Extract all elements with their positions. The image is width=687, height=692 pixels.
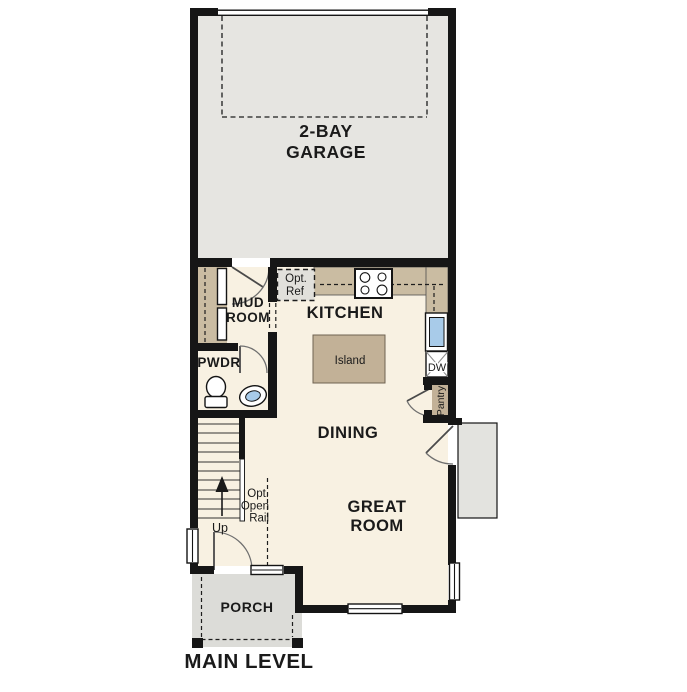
wall-garage-house: [190, 258, 232, 267]
porch-post: [292, 638, 303, 648]
toilet-tank: [205, 397, 227, 408]
wall-powder-top: [190, 343, 238, 351]
island-label: Island: [335, 355, 366, 367]
dishwasher-label: DW: [428, 362, 447, 374]
opt-rail-label-line3: Rail: [249, 513, 269, 525]
wall-powder-bottom: [190, 410, 277, 418]
wall-garage-post-right: [428, 8, 456, 16]
toilet-icon: [207, 377, 226, 398]
dining-label: DINING: [318, 424, 379, 442]
garage-door-line: [218, 15, 428, 16]
wall-greatroom-bottom: [400, 605, 456, 613]
wall-powder-right: [268, 332, 277, 418]
floor-plan-page: 2-BAY GARAGE MUD ROOM KITCHEN Island PWD…: [0, 0, 687, 687]
mudroom-label-line2: ROOM: [226, 310, 270, 325]
wall-house-right: [448, 267, 456, 425]
opt-rail-label-line1: Opt.: [247, 488, 269, 500]
porch-post: [192, 638, 203, 648]
wall-stairs-right: [239, 415, 245, 459]
opt-ref-label-line2: Ref: [286, 286, 305, 298]
greatroom-label-line1: GREAT: [347, 498, 406, 516]
garage-door-line: [218, 10, 428, 11]
opt-rail-label-line2: Open: [241, 501, 269, 513]
wall-garage-left: [190, 8, 198, 267]
greatroom-label-line2: ROOM: [350, 517, 403, 535]
great-room-floor: [303, 566, 448, 606]
wall-greatroom-bottom: [295, 605, 350, 613]
opt-ref-label-line1: Opt.: [285, 273, 307, 285]
pantry-label: Pantry: [435, 385, 447, 416]
wall-house-right: [448, 465, 456, 565]
wall-garage-house: [270, 258, 456, 267]
wall-foyer-front: [190, 566, 214, 574]
porch-label: PORCH: [220, 599, 273, 615]
mudroom-label-line1: MUD: [232, 295, 264, 310]
floor-plan-svg: 2-BAY GARAGE MUD ROOM KITCHEN Island PWD…: [0, 0, 687, 687]
garage-label-line2: GARAGE: [286, 142, 366, 162]
wall-pantry-stub: [424, 385, 432, 390]
side-stoop: [458, 423, 497, 518]
wall-pantry-top: [423, 377, 456, 385]
powder-label: PWDR: [197, 355, 240, 370]
plan-title: MAIN LEVEL: [184, 650, 313, 673]
kitchen-label: KITCHEN: [307, 304, 384, 322]
stove-icon: [355, 269, 392, 298]
wall-garage-post-left: [190, 8, 218, 16]
stairs-up-label: Up: [212, 521, 228, 535]
garage-label-line1: 2-BAY: [299, 121, 352, 141]
wall-garage-right: [448, 8, 456, 267]
wall-pantry-stub: [424, 410, 432, 415]
wall-mudroom-right: [268, 267, 277, 302]
closet-door-panel: [218, 269, 227, 305]
wall-house-left: [190, 267, 198, 528]
kitchen-sink-basin: [430, 318, 445, 347]
